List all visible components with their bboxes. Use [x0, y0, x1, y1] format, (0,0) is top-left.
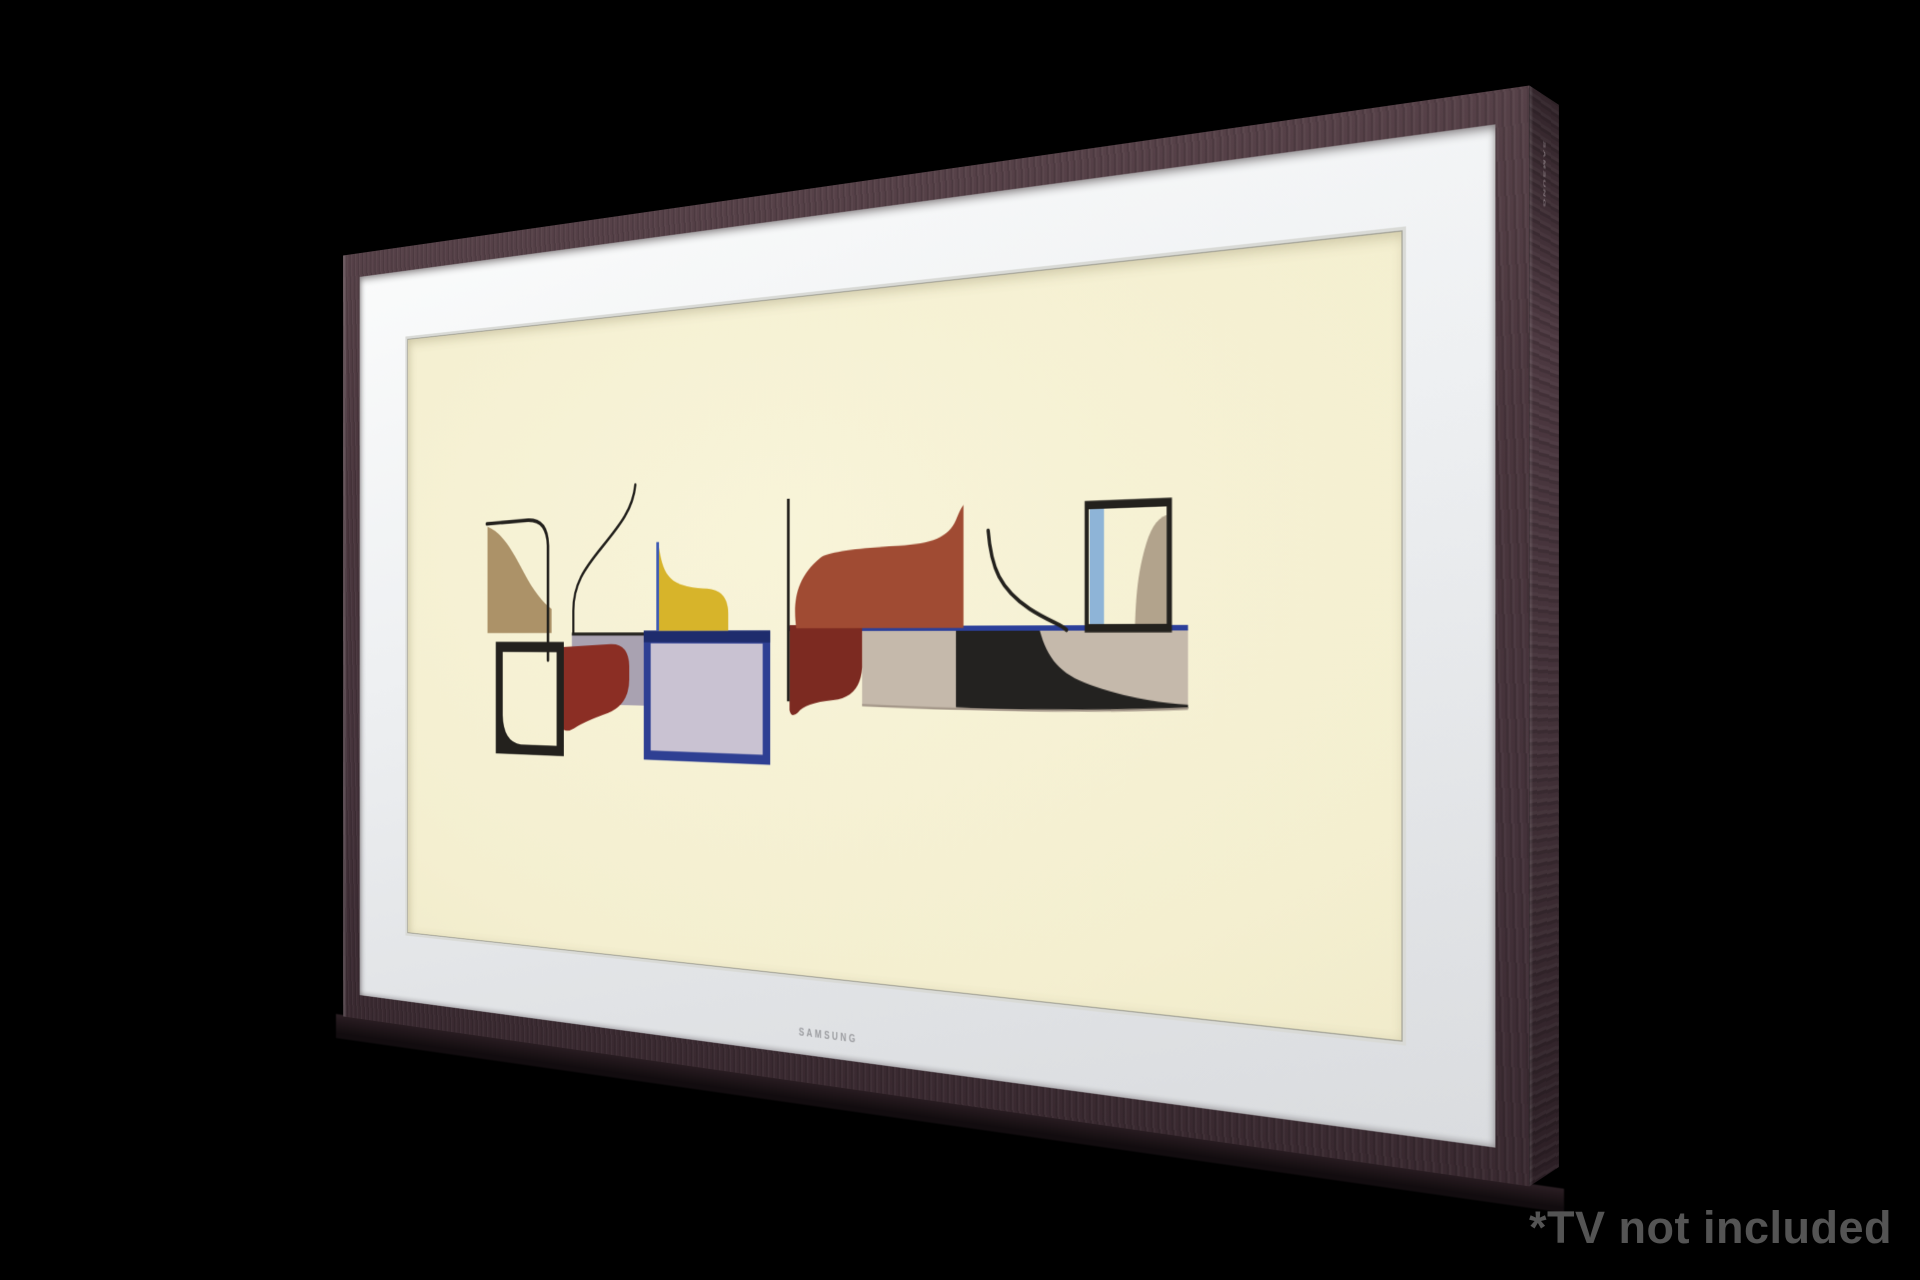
disclaimer-text: *TV not included	[1529, 1202, 1892, 1254]
frame-side-face: SAMSUNG	[1529, 86, 1558, 1187]
artwork-line-blue-horizontal	[788, 625, 1188, 631]
artwork-line-s-curve-right	[988, 528, 1066, 630]
frame-bezel-front: SAMSUNG	[343, 86, 1529, 1187]
artwork-shape-window-frame	[1085, 498, 1172, 633]
art-canvas	[408, 232, 1402, 1041]
samsung-side-logo: SAMSUNG	[1543, 140, 1547, 210]
artwork-shape-red-drape	[560, 644, 629, 733]
artwork-shape-band-black	[956, 630, 1188, 714]
artwork-line-s-curve-left	[573, 485, 635, 633]
frame-tv: SAMSUNG SAMSUNG	[343, 86, 1529, 1187]
artwork-line-vertical	[787, 499, 790, 702]
artwork-shape-dark-red-block	[790, 625, 863, 717]
artwork-shape-navy-inner	[651, 643, 763, 755]
artwork-shape-black-square	[496, 642, 564, 756]
artwork-shape-navy-topbar	[644, 631, 770, 643]
artwork-line-band-edge	[862, 702, 1188, 714]
artwork-shape-tan-drape	[487, 524, 551, 633]
artwork-shape-yellow-drape	[658, 540, 728, 631]
artwork-shape-rust-drape	[795, 505, 963, 629]
matte: SAMSUNG	[360, 124, 1496, 1147]
samsung-matte-logo: SAMSUNG	[799, 1027, 858, 1046]
product-stage: SAMSUNG SAMSUNG	[0, 0, 1920, 1280]
artwork-shape-window-blue-stripe	[1090, 509, 1104, 624]
artwork-shape-beige-band	[862, 630, 1188, 715]
artwork-shape-window-tan	[1135, 515, 1167, 624]
artwork	[408, 232, 1402, 1041]
